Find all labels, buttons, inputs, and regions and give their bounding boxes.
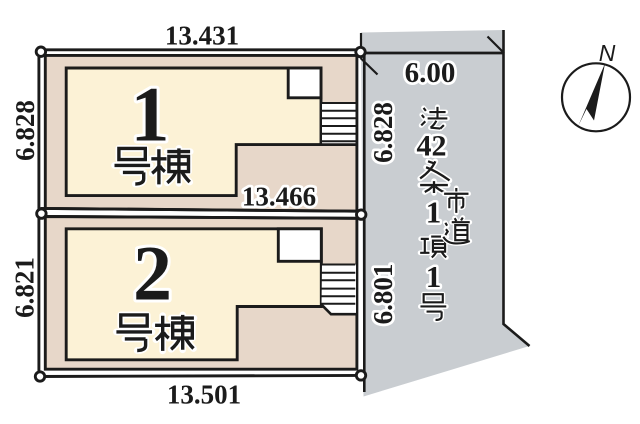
svg-text:N: N — [599, 40, 616, 66]
svg-text:6.821: 6.821 — [10, 257, 40, 318]
svg-text:6.828: 6.828 — [368, 102, 398, 163]
svg-text:1: 1 — [426, 259, 442, 294]
svg-text:13.431: 13.431 — [165, 21, 239, 51]
svg-text:6.801: 6.801 — [368, 264, 398, 325]
svg-text:13.466: 13.466 — [242, 181, 316, 211]
svg-text:6.828: 6.828 — [10, 100, 40, 161]
svg-text:13.501: 13.501 — [167, 379, 241, 409]
svg-text:1: 1 — [426, 195, 442, 230]
svg-text:1: 1 — [131, 71, 170, 158]
svg-text:6.00: 6.00 — [405, 57, 456, 89]
svg-text:2: 2 — [133, 230, 172, 317]
svg-text:42: 42 — [417, 130, 447, 163]
